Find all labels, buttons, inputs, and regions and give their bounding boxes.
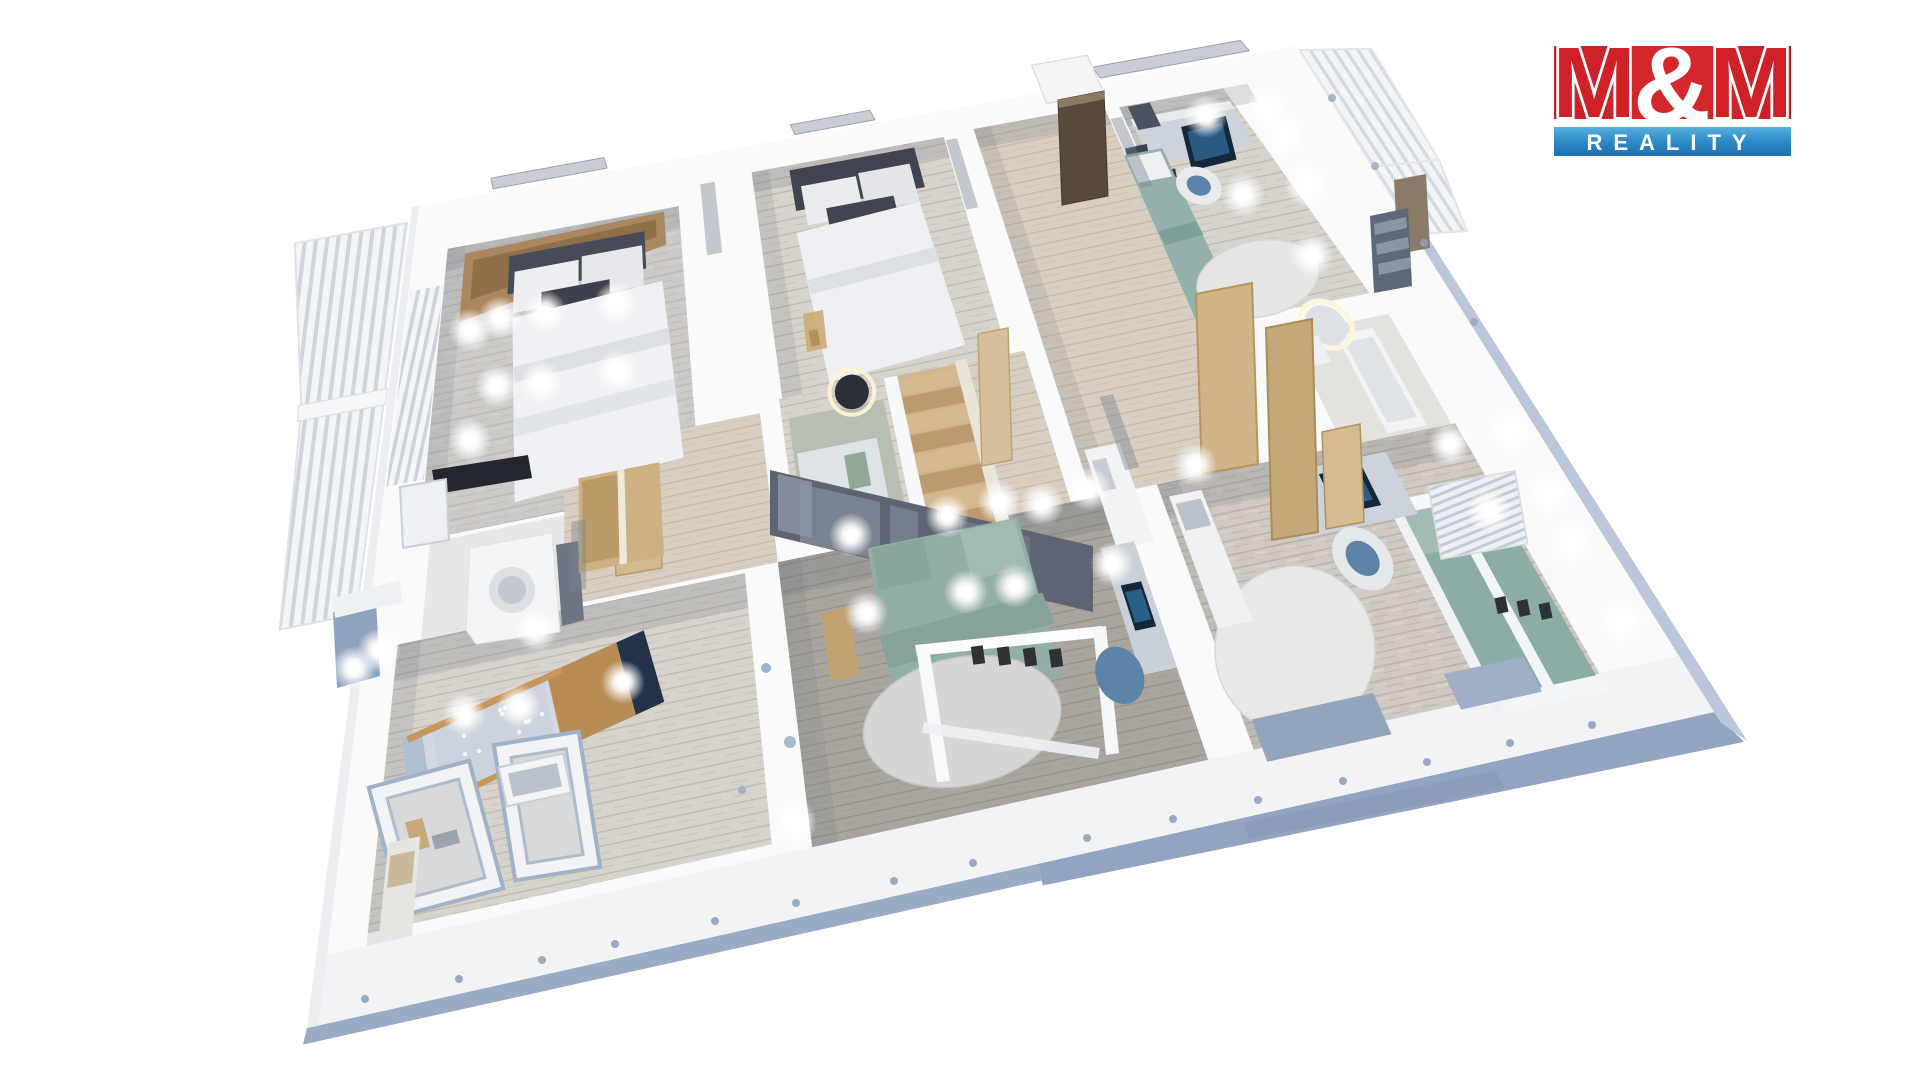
svg-text:M: M [1552,27,1635,139]
svg-text:&: & [1633,24,1711,145]
svg-text:M: M [1709,27,1792,139]
svg-text:REALITY: REALITY [1586,130,1757,155]
